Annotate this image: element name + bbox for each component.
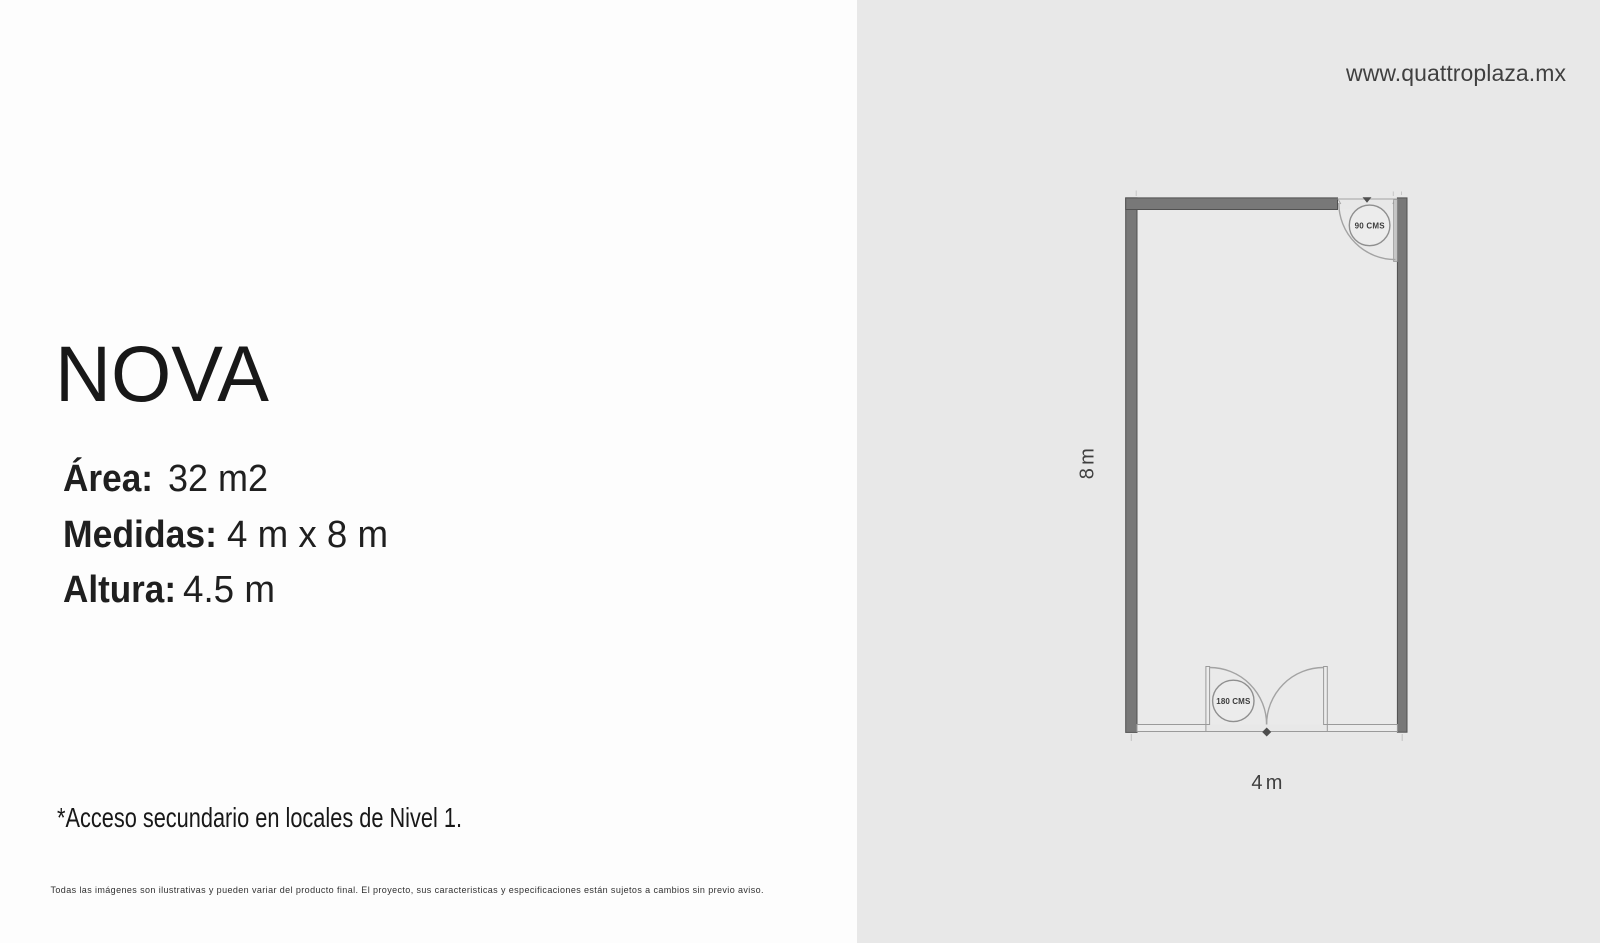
svg-text:180 CMS: 180 CMS	[1216, 697, 1251, 706]
svg-text:Medidas:: Medidas:	[63, 514, 217, 556]
svg-text:Altura:: Altura:	[63, 569, 176, 611]
svg-text:*Acceso secundario en locales: *Acceso secundario en locales de Nivel 1…	[57, 802, 462, 833]
svg-text:8 m: 8 m	[1077, 448, 1099, 479]
svg-text:4.5 m: 4.5 m	[183, 569, 275, 611]
svg-text:NOVA: NOVA	[55, 329, 269, 418]
svg-text:Área:: Área:	[63, 456, 153, 500]
svg-text:4 m: 4 m	[1251, 772, 1282, 794]
svg-text:32 m2: 32 m2	[168, 458, 268, 500]
svg-text:90 CMS: 90 CMS	[1355, 221, 1386, 230]
svg-text:Todas las imágenes son ilustra: Todas las imágenes son ilustrativas y pu…	[51, 885, 764, 895]
svg-text:4 m x 8 m: 4 m x 8 m	[227, 514, 388, 556]
svg-text:www.quattroplaza.mx: www.quattroplaza.mx	[1345, 60, 1567, 86]
